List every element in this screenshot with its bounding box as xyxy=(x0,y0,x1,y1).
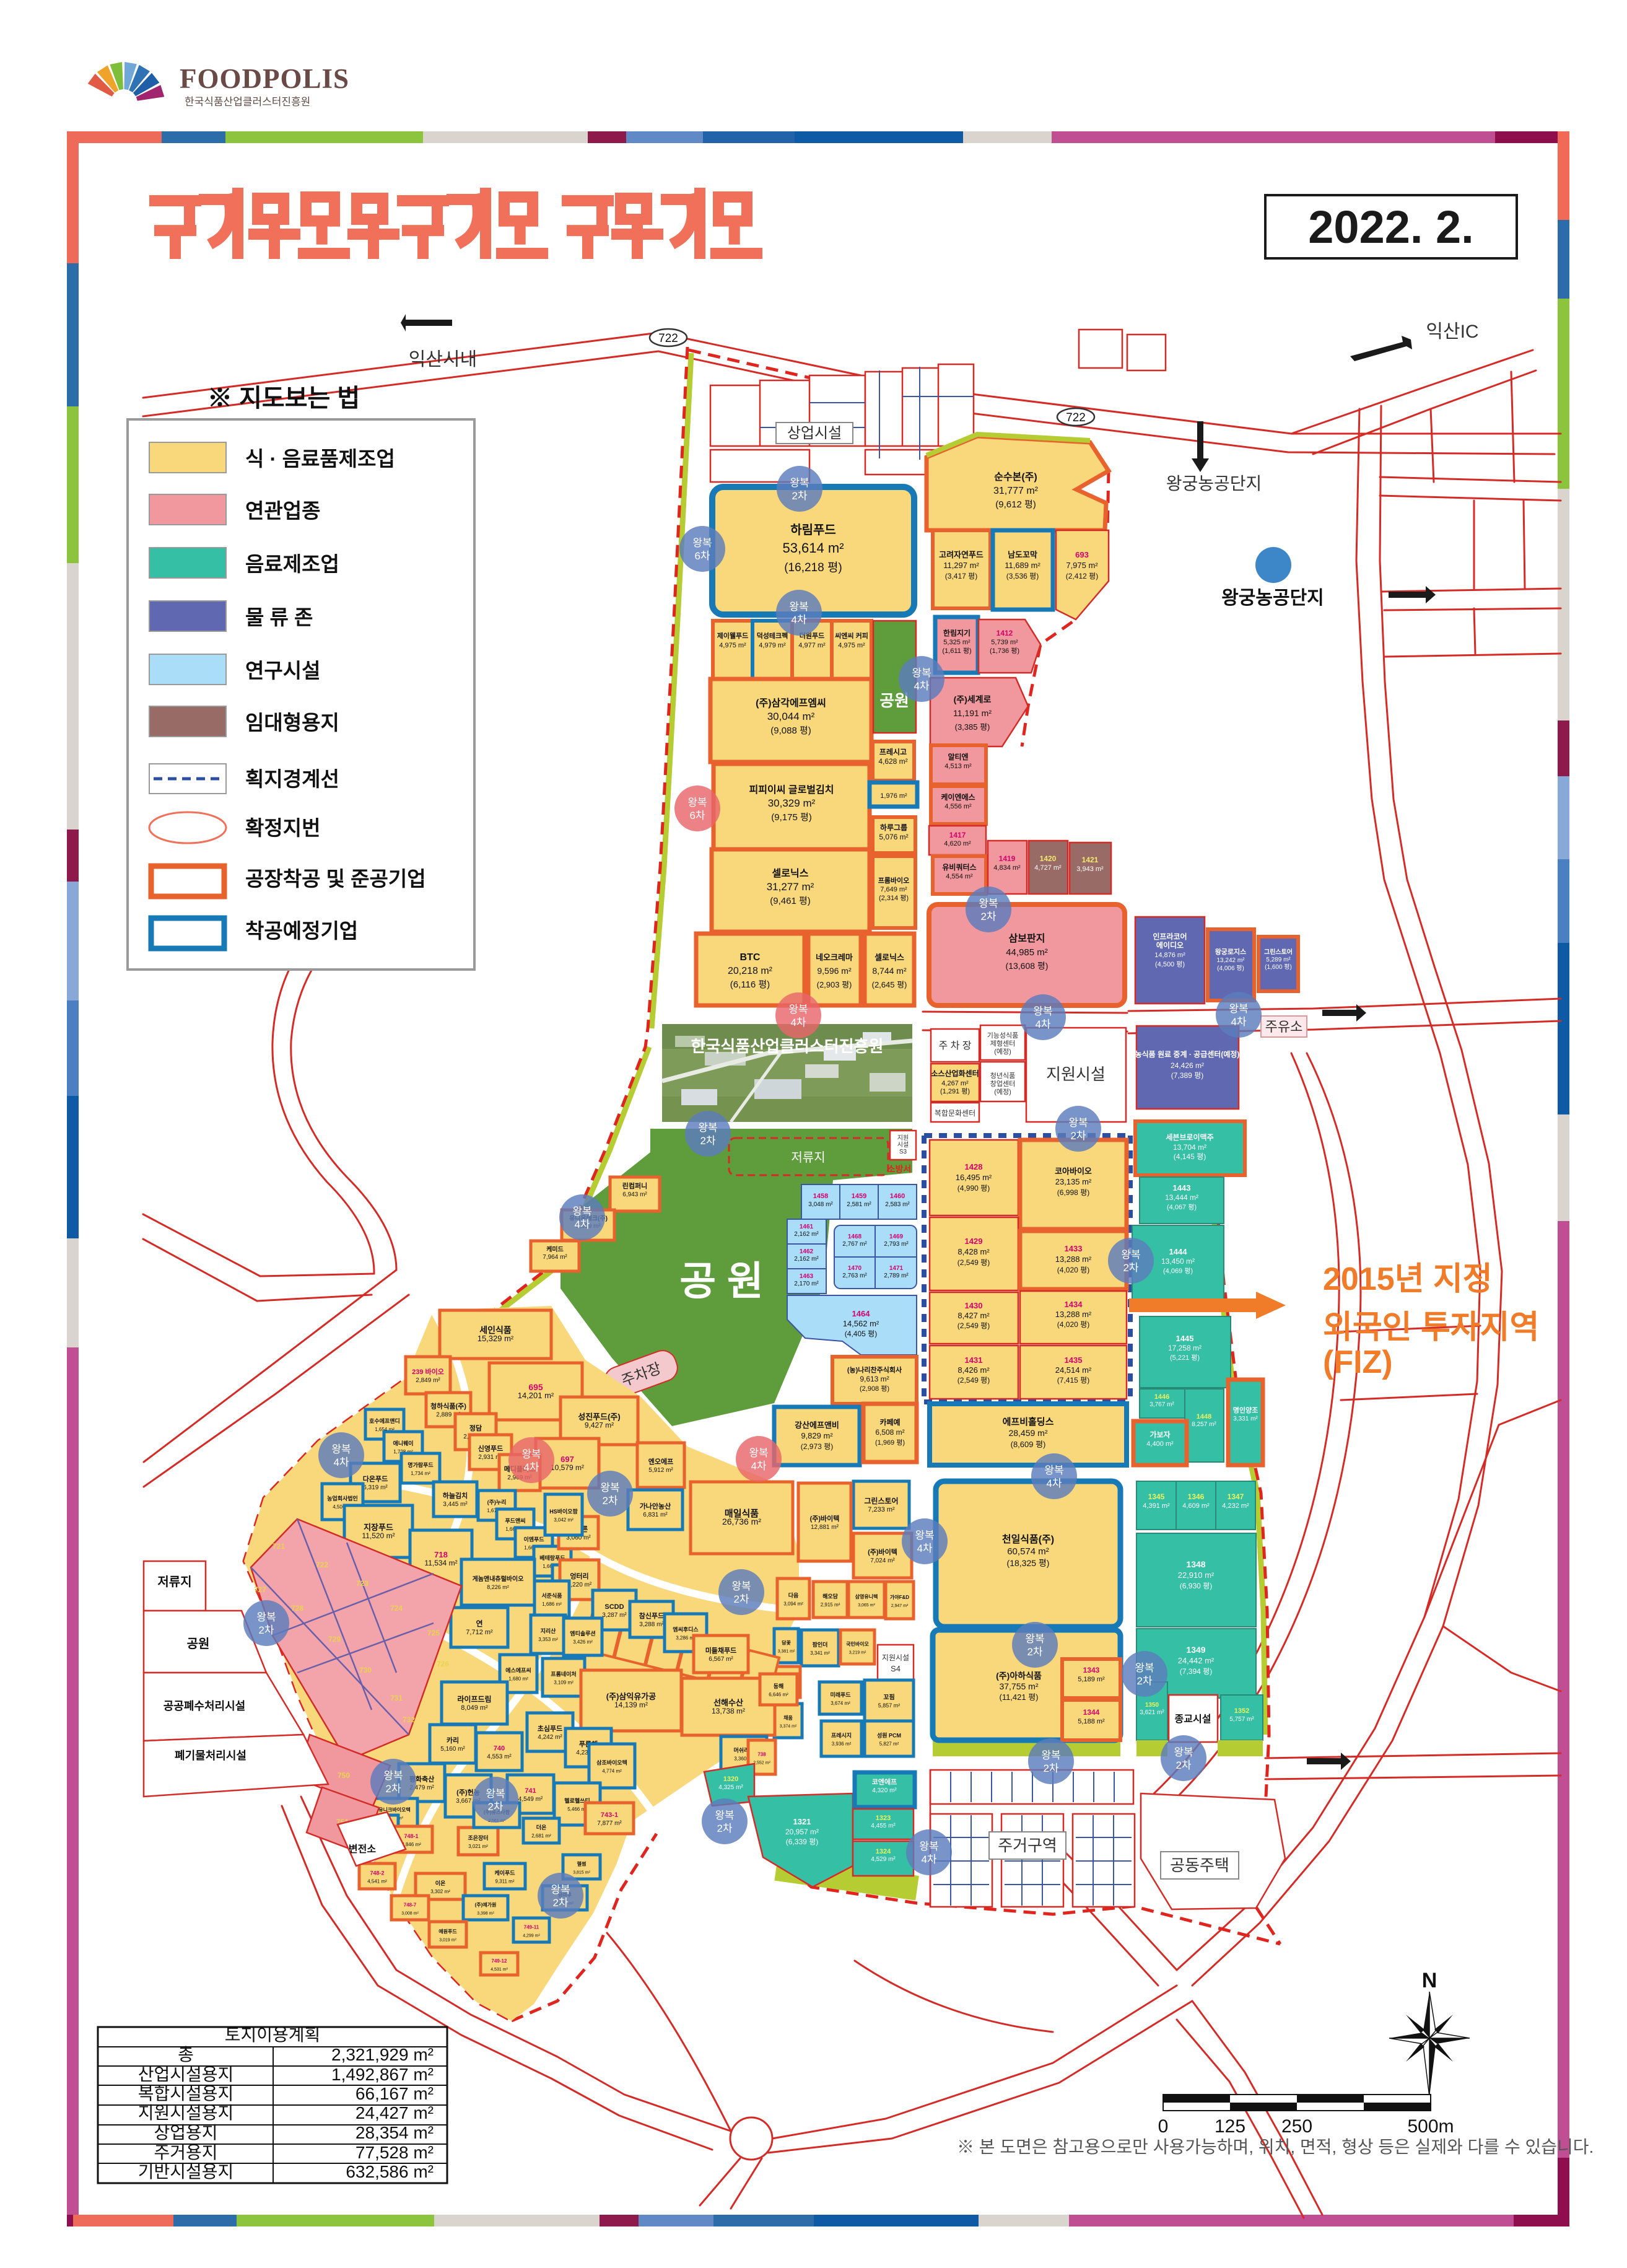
svg-text:(1,969 평): (1,969 평) xyxy=(875,1438,905,1447)
svg-text:가보자: 가보자 xyxy=(1149,1430,1170,1439)
svg-text:왕복: 왕복 xyxy=(912,667,931,679)
svg-text:산업시설용지: 산업시설용지 xyxy=(138,2065,234,2084)
svg-text:(6,339 평): (6,339 평) xyxy=(786,1837,818,1846)
svg-text:제이웰푸드: 제이웰푸드 xyxy=(717,631,749,640)
svg-text:토지이용계획: 토지이용계획 xyxy=(225,2025,321,2044)
svg-text:지원: 지원 xyxy=(897,1134,909,1142)
svg-text:하늘김치: 하늘김치 xyxy=(443,1491,468,1500)
svg-text:37,755 m²: 37,755 m² xyxy=(999,1681,1038,1691)
svg-text:(예정): (예정) xyxy=(994,1088,1011,1096)
svg-text:28,459 m²: 28,459 m² xyxy=(1008,1428,1047,1438)
svg-text:697: 697 xyxy=(561,1455,574,1464)
svg-text:4,556 m²: 4,556 m² xyxy=(944,803,972,810)
svg-text:1460: 1460 xyxy=(890,1193,905,1200)
svg-text:엉터리: 엉터리 xyxy=(570,1572,588,1580)
svg-text:2차: 2차 xyxy=(602,1495,617,1507)
svg-text:1444: 1444 xyxy=(1169,1247,1188,1256)
svg-text:하루그룹: 하루그룹 xyxy=(880,823,907,832)
svg-text:왕복: 왕복 xyxy=(692,537,712,549)
svg-text:1461: 1461 xyxy=(800,1224,814,1230)
svg-text:획지경계선: 획지경계선 xyxy=(245,768,339,790)
svg-text:23,135 m²: 23,135 m² xyxy=(1055,1177,1092,1186)
svg-text:미들채푸드: 미들채푸드 xyxy=(705,1646,737,1655)
svg-text:5,189 m²: 5,189 m² xyxy=(1078,1676,1105,1683)
svg-text:왕복: 왕복 xyxy=(383,1770,403,1782)
svg-text:2차: 2차 xyxy=(385,1783,401,1795)
svg-text:왕복: 왕복 xyxy=(1041,1749,1060,1761)
svg-text:1458: 1458 xyxy=(813,1193,828,1200)
svg-text:2,581 m²: 2,581 m² xyxy=(847,1201,871,1208)
svg-text:9,829 m²: 9,829 m² xyxy=(801,1431,833,1440)
svg-text:왕복: 왕복 xyxy=(1174,1746,1193,1758)
svg-text:4차: 4차 xyxy=(523,1461,539,1473)
svg-text:3,220 m²: 3,220 m² xyxy=(567,1582,592,1588)
svg-text:1343: 1343 xyxy=(1083,1666,1100,1675)
svg-text:2차: 2차 xyxy=(1027,1646,1042,1658)
svg-text:4,549 m²: 4,549 m² xyxy=(518,1796,543,1803)
svg-text:6차: 6차 xyxy=(689,810,705,821)
svg-text:1469: 1469 xyxy=(889,1233,904,1240)
svg-text:3,943 m²: 3,943 m² xyxy=(1076,865,1104,873)
svg-text:코엔에프: 코엔에프 xyxy=(872,1777,897,1786)
svg-text:4,531 m²: 4,531 m² xyxy=(491,1968,508,1972)
svg-text:외국인 투자지역: 외국인 투자지역 xyxy=(1323,1310,1539,1346)
svg-text:(4,067 평): (4,067 평) xyxy=(1167,1203,1197,1211)
svg-text:1470: 1470 xyxy=(848,1265,862,1272)
svg-text:미래푸드: 미래푸드 xyxy=(830,1691,851,1698)
svg-text:1350: 1350 xyxy=(1145,1702,1159,1709)
svg-text:카리: 카리 xyxy=(447,1736,459,1745)
svg-text:13,444 m²: 13,444 m² xyxy=(1165,1193,1198,1202)
svg-text:주 차 장: 주 차 장 xyxy=(938,1040,971,1051)
svg-text:14,562 m²: 14,562 m² xyxy=(843,1319,879,1328)
svg-text:4,979 m²: 4,979 m² xyxy=(759,642,786,649)
svg-text:4차: 4차 xyxy=(1035,1018,1050,1030)
svg-text:6차: 6차 xyxy=(694,550,710,562)
svg-text:24,442 m²: 24,442 m² xyxy=(1178,1656,1215,1665)
svg-text:착공예정기업: 착공예정기업 xyxy=(245,919,358,942)
svg-text:1431: 1431 xyxy=(965,1355,983,1365)
svg-text:500m: 500m xyxy=(1407,2116,1454,2137)
svg-text:(1,611 평): (1,611 평) xyxy=(942,647,971,655)
svg-text:FOODPOLIS: FOODPOLIS xyxy=(180,63,349,94)
svg-text:카페예: 카페예 xyxy=(879,1417,900,1427)
svg-text:지원시설용지: 지원시설용지 xyxy=(138,2103,234,2122)
svg-text:726: 726 xyxy=(437,1660,449,1668)
svg-text:2,767 m²: 2,767 m² xyxy=(842,1241,867,1248)
svg-text:성원 PCM: 성원 PCM xyxy=(877,1732,901,1739)
svg-text:1433: 1433 xyxy=(1065,1244,1083,1253)
svg-text:2차: 2차 xyxy=(1136,1675,1152,1687)
svg-text:30,044 m²: 30,044 m² xyxy=(767,711,815,722)
svg-text:1468: 1468 xyxy=(848,1233,862,1240)
svg-text:강산에프앤비: 강산에프앤비 xyxy=(795,1421,839,1430)
svg-text:738: 738 xyxy=(757,1752,766,1758)
svg-text:4,325 m²: 4,325 m² xyxy=(718,1784,743,1791)
svg-text:2차: 2차 xyxy=(552,1897,568,1909)
svg-text:한림지기: 한림지기 xyxy=(943,628,971,637)
svg-text:7,877 m²: 7,877 m² xyxy=(597,1820,622,1827)
svg-text:8,744 m²: 8,744 m² xyxy=(872,966,907,976)
svg-text:임대형용지: 임대형용지 xyxy=(245,711,339,734)
svg-text:(5,221 평): (5,221 평) xyxy=(1170,1354,1200,1362)
svg-text:왕복: 왕복 xyxy=(788,1004,808,1015)
svg-text:749-12: 749-12 xyxy=(492,1958,507,1964)
svg-text:2,947 m²: 2,947 m² xyxy=(891,1604,909,1608)
svg-text:3,374 m²: 3,374 m² xyxy=(780,1725,797,1729)
svg-text:20,218 m²: 20,218 m² xyxy=(728,966,773,976)
svg-text:1,734 m²: 1,734 m² xyxy=(411,1471,430,1476)
svg-text:총: 총 xyxy=(178,2045,194,2064)
svg-text:게놈앤내츄럴바이오: 게놈앤내츄럴바이오 xyxy=(473,1575,524,1583)
svg-text:5,289 m²: 5,289 m² xyxy=(1266,957,1291,963)
svg-text:1430: 1430 xyxy=(965,1301,983,1310)
svg-text:가야F&D: 가야F&D xyxy=(890,1594,909,1600)
svg-text:1464: 1464 xyxy=(852,1309,871,1318)
svg-text:2,849 m²: 2,849 m² xyxy=(416,1377,440,1384)
svg-text:11,191 m²: 11,191 m² xyxy=(953,708,992,718)
svg-text:66,167 m²: 66,167 m² xyxy=(355,2084,434,2103)
svg-text:2차: 2차 xyxy=(1176,1759,1191,1771)
svg-text:4,299 m²: 4,299 m² xyxy=(523,1934,540,1938)
svg-text:왕복: 왕복 xyxy=(521,1448,541,1460)
svg-text:3,008 m²: 3,008 m² xyxy=(401,1912,419,1916)
svg-text:6,508 m²: 6,508 m² xyxy=(875,1428,904,1437)
svg-text:창업센터: 창업센터 xyxy=(990,1080,1015,1088)
svg-text:지리산: 지리산 xyxy=(541,1627,557,1634)
svg-text:3,398 m²: 3,398 m² xyxy=(477,1912,494,1916)
svg-text:750: 750 xyxy=(338,1771,350,1780)
svg-text:다음: 다음 xyxy=(788,1592,799,1599)
svg-text:(9,088 평): (9,088 평) xyxy=(770,725,811,736)
svg-text:724: 724 xyxy=(390,1604,403,1613)
svg-text:(농)나리찬주식회사: (농)나리찬주식회사 xyxy=(847,1365,902,1374)
svg-text:(4,990 평): (4,990 평) xyxy=(957,1184,990,1193)
svg-text:632,586 m²: 632,586 m² xyxy=(346,2162,434,2181)
svg-text:2,321,929 m²: 2,321,929 m² xyxy=(331,2045,434,2064)
svg-text:왕복: 왕복 xyxy=(698,1122,717,1134)
svg-text:(주)삼각에프엠씨: (주)삼각에프엠씨 xyxy=(756,697,826,709)
svg-text:(4,145 평): (4,145 평) xyxy=(1174,1152,1206,1161)
svg-text:4차: 4차 xyxy=(751,1460,766,1472)
svg-text:고려자연푸드: 고려자연푸드 xyxy=(939,550,984,559)
svg-text:농식품 원료 중계 · 공급센터(예정): 농식품 원료 중계 · 공급센터(예정) xyxy=(1135,1049,1240,1059)
svg-text:4,455 m²: 4,455 m² xyxy=(871,1823,896,1829)
svg-text:4,553 m²: 4,553 m² xyxy=(487,1754,512,1761)
svg-text:왕궁로지스: 왕궁로지스 xyxy=(1215,947,1247,956)
svg-text:더온: 더온 xyxy=(536,1824,547,1831)
svg-text:왕복: 왕복 xyxy=(1121,1249,1140,1261)
svg-text:(3,385 평): (3,385 평) xyxy=(955,722,990,732)
svg-text:26,736 m²: 26,736 m² xyxy=(722,1517,761,1526)
svg-text:초심푸드: 초심푸드 xyxy=(538,1724,562,1733)
svg-text:왕복: 왕복 xyxy=(1025,1633,1044,1645)
svg-text:4차: 4차 xyxy=(790,1017,806,1028)
svg-text:11,297 m²: 11,297 m² xyxy=(943,561,979,570)
svg-text:1471: 1471 xyxy=(889,1265,904,1272)
svg-text:인프라코어: 인프라코어 xyxy=(1153,932,1187,941)
svg-text:왕복: 왕복 xyxy=(749,1447,768,1459)
svg-text:1463: 1463 xyxy=(800,1273,814,1280)
svg-text:740: 740 xyxy=(494,1745,505,1753)
svg-text:1348: 1348 xyxy=(1186,1559,1205,1569)
svg-text:9,311 m²: 9,311 m² xyxy=(495,1879,515,1885)
svg-text:4차: 4차 xyxy=(1231,1016,1246,1028)
svg-text:1448: 1448 xyxy=(1197,1413,1211,1421)
svg-text:꼬핌: 꼬핌 xyxy=(883,1693,894,1701)
svg-text:12,881 m²: 12,881 m² xyxy=(811,1524,839,1531)
svg-text:왕궁농공단지: 왕궁농공단지 xyxy=(1221,588,1324,608)
svg-text:1428: 1428 xyxy=(965,1162,983,1171)
svg-text:1419: 1419 xyxy=(999,854,1016,863)
svg-text:1344: 1344 xyxy=(1083,1708,1100,1717)
svg-text:5,857 m²: 5,857 m² xyxy=(878,1702,901,1709)
svg-text:28,354 m²: 28,354 m² xyxy=(355,2123,434,2142)
svg-text:담꽃: 담꽃 xyxy=(782,1640,791,1646)
svg-text:22,910 m²: 22,910 m² xyxy=(1178,1570,1215,1580)
svg-text:732: 732 xyxy=(403,1715,415,1724)
svg-text:718: 718 xyxy=(434,1550,448,1559)
svg-text:소방서: 소방서 xyxy=(888,1164,912,1174)
svg-text:조은장터: 조은장터 xyxy=(468,1834,488,1841)
svg-text:해오담: 해오담 xyxy=(822,1593,839,1600)
svg-text:삼조바이오텍: 삼조바이오텍 xyxy=(596,1759,627,1766)
svg-text:(7,394 평): (7,394 평) xyxy=(1180,1667,1212,1676)
svg-text:팜인더: 팜인더 xyxy=(813,1641,828,1648)
svg-text:그린스토어: 그린스토어 xyxy=(864,1496,898,1505)
svg-text:1446: 1446 xyxy=(1154,1393,1169,1401)
svg-text:8,428 m²: 8,428 m² xyxy=(957,1247,990,1256)
svg-text:13,242 m²: 13,242 m² xyxy=(1216,957,1245,964)
svg-text:1435: 1435 xyxy=(1065,1355,1083,1365)
svg-text:727: 727 xyxy=(254,1585,266,1594)
svg-text:3,767 m²: 3,767 m² xyxy=(1149,1401,1174,1408)
svg-text:24,514 m²: 24,514 m² xyxy=(1055,1365,1092,1375)
svg-text:1345: 1345 xyxy=(1148,1492,1165,1501)
svg-text:9,427 m²: 9,427 m² xyxy=(585,1421,614,1430)
svg-text:14,139 m²: 14,139 m² xyxy=(614,1701,648,1709)
svg-text:하림푸드: 하림푸드 xyxy=(790,523,836,537)
svg-text:1,686 m²: 1,686 m² xyxy=(542,1601,562,1607)
svg-text:익산IC: 익산IC xyxy=(1426,322,1478,342)
svg-text:예원푸드: 예원푸드 xyxy=(438,1929,457,1935)
svg-text:엠씨후디스: 엠씨후디스 xyxy=(673,1626,699,1633)
svg-text:4,267 m²: 4,267 m² xyxy=(941,1080,969,1087)
svg-text:2차: 2차 xyxy=(792,490,807,502)
svg-text:3,674 m²: 3,674 m² xyxy=(831,1701,850,1706)
svg-text:(4,405 평): (4,405 평) xyxy=(845,1329,877,1338)
svg-text:(2,549 평): (2,549 평) xyxy=(957,1376,990,1385)
svg-text:(2,412 평): (2,412 평) xyxy=(1066,572,1098,580)
svg-text:0: 0 xyxy=(1158,2116,1169,2137)
svg-text:30,329 m²: 30,329 m² xyxy=(768,797,816,809)
svg-text:6,943 m²: 6,943 m² xyxy=(622,1191,647,1198)
svg-text:연: 연 xyxy=(476,1619,482,1628)
svg-text:기능성식품: 기능성식품 xyxy=(987,1031,1019,1040)
svg-text:3,288 m²: 3,288 m² xyxy=(639,1621,664,1628)
svg-text:721: 721 xyxy=(273,1542,285,1551)
svg-text:11,520 m²: 11,520 m² xyxy=(362,1531,395,1540)
svg-text:125: 125 xyxy=(1215,2116,1245,2137)
svg-text:왕복: 왕복 xyxy=(1068,1117,1088,1129)
svg-text:왕복: 왕복 xyxy=(1033,1005,1052,1017)
svg-text:선해수산: 선해수산 xyxy=(713,1698,743,1707)
svg-text:유비쿼터스: 유비쿼터스 xyxy=(942,862,976,872)
svg-text:농업회사법인: 농업회사법인 xyxy=(327,1495,358,1502)
svg-text:N: N xyxy=(1422,1969,1437,1992)
svg-text:250: 250 xyxy=(1281,2116,1312,2137)
svg-text:14,201 m²: 14,201 m² xyxy=(518,1391,554,1400)
svg-text:2,793 m²: 2,793 m² xyxy=(884,1241,909,1248)
svg-text:공장착공 및 준공기업: 공장착공 및 준공기업 xyxy=(245,867,426,890)
svg-text:6,831 m²: 6,831 m² xyxy=(643,1512,668,1518)
svg-text:프레시고: 프레시고 xyxy=(879,747,907,756)
svg-text:2차: 2차 xyxy=(980,911,996,922)
svg-text:남도꼬막: 남도꼬막 xyxy=(1008,550,1037,559)
svg-text:지원시설: 지원시설 xyxy=(882,1653,909,1662)
svg-text:폐기물처리시설: 폐기물처리시설 xyxy=(175,1749,246,1762)
svg-text:693: 693 xyxy=(1075,550,1089,559)
svg-text:삼보판지: 삼보판지 xyxy=(1009,933,1045,944)
svg-text:지장푸드: 지장푸드 xyxy=(364,1523,393,1532)
svg-text:2,552 m²: 2,552 m² xyxy=(753,1761,770,1766)
svg-text:셀로닉스: 셀로닉스 xyxy=(875,953,904,962)
svg-text:2차: 2차 xyxy=(700,1135,715,1147)
svg-text:9,596 m²: 9,596 m² xyxy=(817,966,852,976)
svg-text:4,232 m²: 4,232 m² xyxy=(1222,1502,1249,1510)
svg-text:4차: 4차 xyxy=(914,680,929,692)
svg-text:8,257 m²: 8,257 m² xyxy=(1192,1421,1216,1428)
svg-text:(11,421 평): (11,421 평) xyxy=(999,1692,1038,1702)
svg-text:(주)바이텍: (주)바이텍 xyxy=(868,1548,897,1556)
svg-text:13,738 m²: 13,738 m² xyxy=(712,1707,745,1715)
svg-text:15,329 m²: 15,329 m² xyxy=(478,1334,514,1343)
svg-text:17,258 m²: 17,258 m² xyxy=(1168,1344,1202,1352)
svg-text:애니웨이: 애니웨이 xyxy=(393,1440,413,1447)
svg-text:2015년 지정: 2015년 지정 xyxy=(1323,1261,1493,1297)
svg-text:1417: 1417 xyxy=(949,831,966,839)
svg-text:1421: 1421 xyxy=(1082,856,1099,864)
svg-text:(2,973 평): (2,973 평) xyxy=(801,1442,833,1451)
svg-text:7,712 m²: 7,712 m² xyxy=(466,1629,493,1636)
svg-text:1320: 1320 xyxy=(723,1775,738,1783)
svg-text:2차: 2차 xyxy=(717,1823,732,1834)
svg-text:명인양조: 명인양조 xyxy=(1233,1406,1258,1414)
svg-text:코아바이오: 코아바이오 xyxy=(1055,1167,1092,1176)
svg-text:723: 723 xyxy=(356,1579,369,1588)
svg-text:730: 730 xyxy=(359,1666,372,1675)
svg-text:728: 728 xyxy=(291,1604,303,1613)
svg-text:31,277 m²: 31,277 m² xyxy=(767,881,814,893)
svg-text:725: 725 xyxy=(427,1629,440,1637)
svg-text:왕복: 왕복 xyxy=(331,1443,351,1455)
svg-text:4,774 m²: 4,774 m² xyxy=(602,1769,622,1774)
svg-text:주거구역: 주거구역 xyxy=(998,1836,1057,1855)
svg-text:왕복: 왕복 xyxy=(1229,1003,1248,1015)
svg-text:1,976 m²: 1,976 m² xyxy=(880,792,907,800)
svg-text:에프비홀딩스: 에프비홀딩스 xyxy=(1003,1416,1054,1427)
svg-text:변전소: 변전소 xyxy=(349,1844,376,1855)
svg-text:4,727 m²: 4,727 m² xyxy=(1034,864,1062,872)
svg-text:공원: 공원 xyxy=(187,1637,210,1651)
svg-text:청년식품: 청년식품 xyxy=(990,1072,1015,1080)
svg-text:왕복: 왕복 xyxy=(1135,1662,1154,1674)
svg-text:왕복: 왕복 xyxy=(915,1530,934,1541)
svg-text:연구시설: 연구시설 xyxy=(245,659,320,682)
svg-text:동해: 동해 xyxy=(774,1683,784,1689)
svg-text:4,541 m²: 4,541 m² xyxy=(367,1879,387,1885)
svg-text:케미드: 케미드 xyxy=(546,1245,564,1253)
svg-text:5,325 m²: 5,325 m² xyxy=(943,639,971,646)
svg-text:3,621 m²: 3,621 m² xyxy=(1140,1709,1164,1716)
svg-text:(9,175 평): (9,175 평) xyxy=(771,812,812,823)
svg-text:S3: S3 xyxy=(899,1149,907,1155)
svg-text:8,226 m²: 8,226 m² xyxy=(487,1584,509,1590)
svg-text:(1,600 평): (1,600 평) xyxy=(1265,963,1292,971)
svg-text:(2,314 평): (2,314 평) xyxy=(879,894,909,902)
svg-text:3,815 m²: 3,815 m² xyxy=(573,1871,590,1875)
svg-text:3,381 m²: 3,381 m² xyxy=(778,1650,795,1654)
svg-text:7,233 m²: 7,233 m² xyxy=(868,1506,895,1513)
svg-text:익산시내: 익산시내 xyxy=(409,349,477,370)
svg-text:푸드앤씨: 푸드앤씨 xyxy=(505,1517,525,1524)
svg-text:음료제조업: 음료제조업 xyxy=(245,553,339,576)
svg-text:5,827 m²: 5,827 m² xyxy=(879,1741,899,1747)
svg-text:1349: 1349 xyxy=(1186,1645,1205,1655)
svg-text:시설: 시설 xyxy=(897,1141,909,1149)
svg-text:13,704 m²: 13,704 m² xyxy=(1173,1143,1206,1152)
svg-text:748-7: 748-7 xyxy=(404,1902,417,1908)
svg-text:4,391 m²: 4,391 m² xyxy=(1143,1502,1170,1510)
svg-text:743-1: 743-1 xyxy=(601,1811,618,1819)
svg-text:1462: 1462 xyxy=(800,1248,814,1255)
svg-text:4차: 4차 xyxy=(791,614,806,626)
svg-text:SCDD: SCDD xyxy=(604,1603,624,1611)
svg-text:호수에프앤디: 호수에프앤디 xyxy=(369,1417,400,1424)
svg-text:(16,218 평): (16,218 평) xyxy=(784,561,842,574)
svg-text:14,876 m²: 14,876 m² xyxy=(1154,952,1185,959)
svg-text:성진푸드(주): 성진푸드(주) xyxy=(578,1412,620,1422)
svg-text:확정지번: 확정지번 xyxy=(245,817,320,839)
svg-text:2차: 2차 xyxy=(1070,1130,1086,1142)
svg-text:3,353 m²: 3,353 m² xyxy=(538,1637,558,1642)
svg-text:천일식품(주): 천일식품(주) xyxy=(1002,1534,1054,1545)
svg-text:순수본(주): 순수본(주) xyxy=(994,471,1037,483)
svg-text:왕복: 왕복 xyxy=(572,1206,591,1217)
svg-text:프롬네이처: 프롬네이처 xyxy=(551,1671,576,1678)
svg-text:8,049 m²: 8,049 m² xyxy=(461,1704,488,1712)
svg-text:서준식품: 서준식품 xyxy=(541,1592,562,1599)
svg-text:722: 722 xyxy=(658,332,678,345)
svg-text:(4,006 평): (4,006 평) xyxy=(1217,965,1244,972)
svg-text:2차: 2차 xyxy=(258,1624,274,1636)
svg-text:케이푸드: 케이푸드 xyxy=(494,1870,515,1876)
svg-text:4,628 m²: 4,628 m² xyxy=(878,757,907,766)
svg-text:13,288 m²: 13,288 m² xyxy=(1055,1254,1092,1264)
svg-text:(1,291 평): (1,291 평) xyxy=(940,1087,970,1095)
svg-text:4,554 m²: 4,554 m² xyxy=(946,873,973,880)
svg-text:3,331 m²: 3,331 m² xyxy=(1233,1416,1258,1422)
svg-text:복합시설용지: 복합시설용지 xyxy=(138,2084,234,2103)
svg-text:에이디오: 에이디오 xyxy=(1156,940,1184,950)
svg-text:4,320 m²: 4,320 m² xyxy=(872,1787,897,1794)
svg-text:명가람푸드: 명가람푸드 xyxy=(408,1461,434,1468)
svg-text:1434: 1434 xyxy=(1065,1300,1083,1309)
svg-text:44,985 m²: 44,985 m² xyxy=(1006,947,1048,958)
svg-text:4차: 4차 xyxy=(1046,1478,1062,1489)
svg-text:주유소: 주유소 xyxy=(1265,1019,1303,1035)
svg-text:(7,415 평): (7,415 평) xyxy=(1057,1376,1089,1385)
